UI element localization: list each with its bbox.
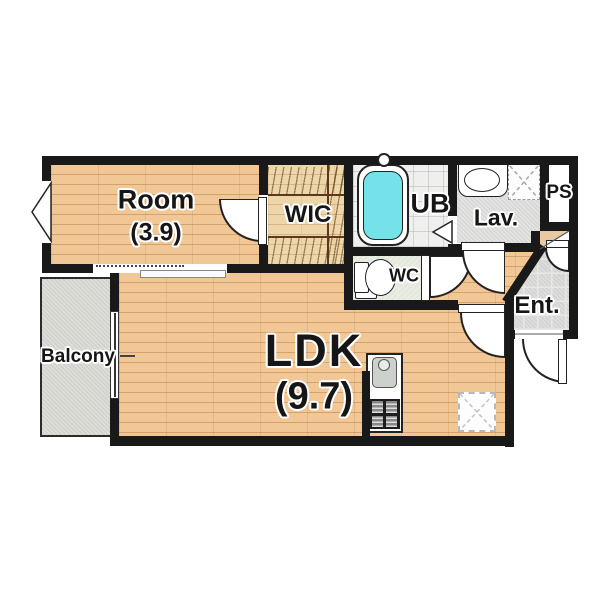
floorplan-canvas: Room (3.9) WIC UB Lav. PS WC Ent. LDK (9… (0, 0, 600, 600)
bay-window-gap (42, 180, 51, 244)
sliding-door-track-icon (96, 265, 184, 267)
ub-label: UB (411, 189, 450, 220)
wall-room-bottom-right (227, 264, 353, 273)
wall-wc-bottom (344, 300, 458, 310)
wall-bottom (110, 436, 514, 446)
stove-grate-icon (372, 416, 383, 427)
wall-top (42, 156, 578, 165)
lav-sink-basin-icon (464, 168, 500, 192)
wall-left-upper (42, 156, 51, 180)
balcony-label: Balcony (41, 346, 115, 368)
lav-door-leaf-icon (461, 242, 505, 251)
wall-ub-bottom (344, 247, 457, 256)
wall-ldk-right (505, 297, 514, 447)
stove-grate-icon (372, 401, 383, 413)
wc-door-leaf-icon (421, 255, 430, 301)
stove-grate-icon (386, 416, 397, 427)
ldk-label: LDK (265, 325, 363, 377)
room-label: Room (118, 185, 195, 216)
wall-kitchen-stub (362, 371, 370, 438)
room-size-label: (3.9) (130, 219, 181, 248)
wc-label: WC (389, 266, 419, 287)
wall-room-bottom-left (42, 264, 93, 273)
entrance-door-gap (515, 330, 563, 339)
room-door-leaf-icon (258, 197, 267, 245)
wall-room-wic-upper (259, 156, 268, 195)
wall-hall-corner-stub (531, 231, 540, 252)
wall-ent-bottom-right (563, 330, 578, 339)
wic-label: WIC (285, 201, 332, 229)
wall-ldk-left-lower (110, 399, 119, 446)
washer-pan-icon (508, 164, 540, 200)
refrigerator-space-icon (458, 392, 496, 432)
ub-door-gap (448, 216, 457, 244)
balcony-label-tick (120, 355, 135, 357)
ent-label: Ent. (514, 292, 559, 320)
wall-wic-ub (344, 156, 353, 310)
bath-faucet-icon (377, 153, 391, 167)
wall-ent-bottom-left (505, 330, 515, 339)
ldk-door-leaf-icon (458, 304, 505, 313)
bathtub-water (363, 171, 403, 240)
stove-grate-icon (386, 401, 397, 413)
wall-ps-bottom (540, 222, 578, 231)
sliding-door-leaf-icon (140, 270, 226, 278)
lav-label: Lav. (474, 205, 518, 232)
kitchen-sink-drain-icon (378, 359, 390, 371)
ldk-size-label: (9.7) (275, 376, 353, 419)
entrance-closet-door-leaf-icon (546, 240, 569, 248)
wall-room-wic-lower (259, 245, 268, 273)
entrance-door-leaf-icon (558, 339, 567, 384)
ps-label: PS (546, 182, 571, 204)
